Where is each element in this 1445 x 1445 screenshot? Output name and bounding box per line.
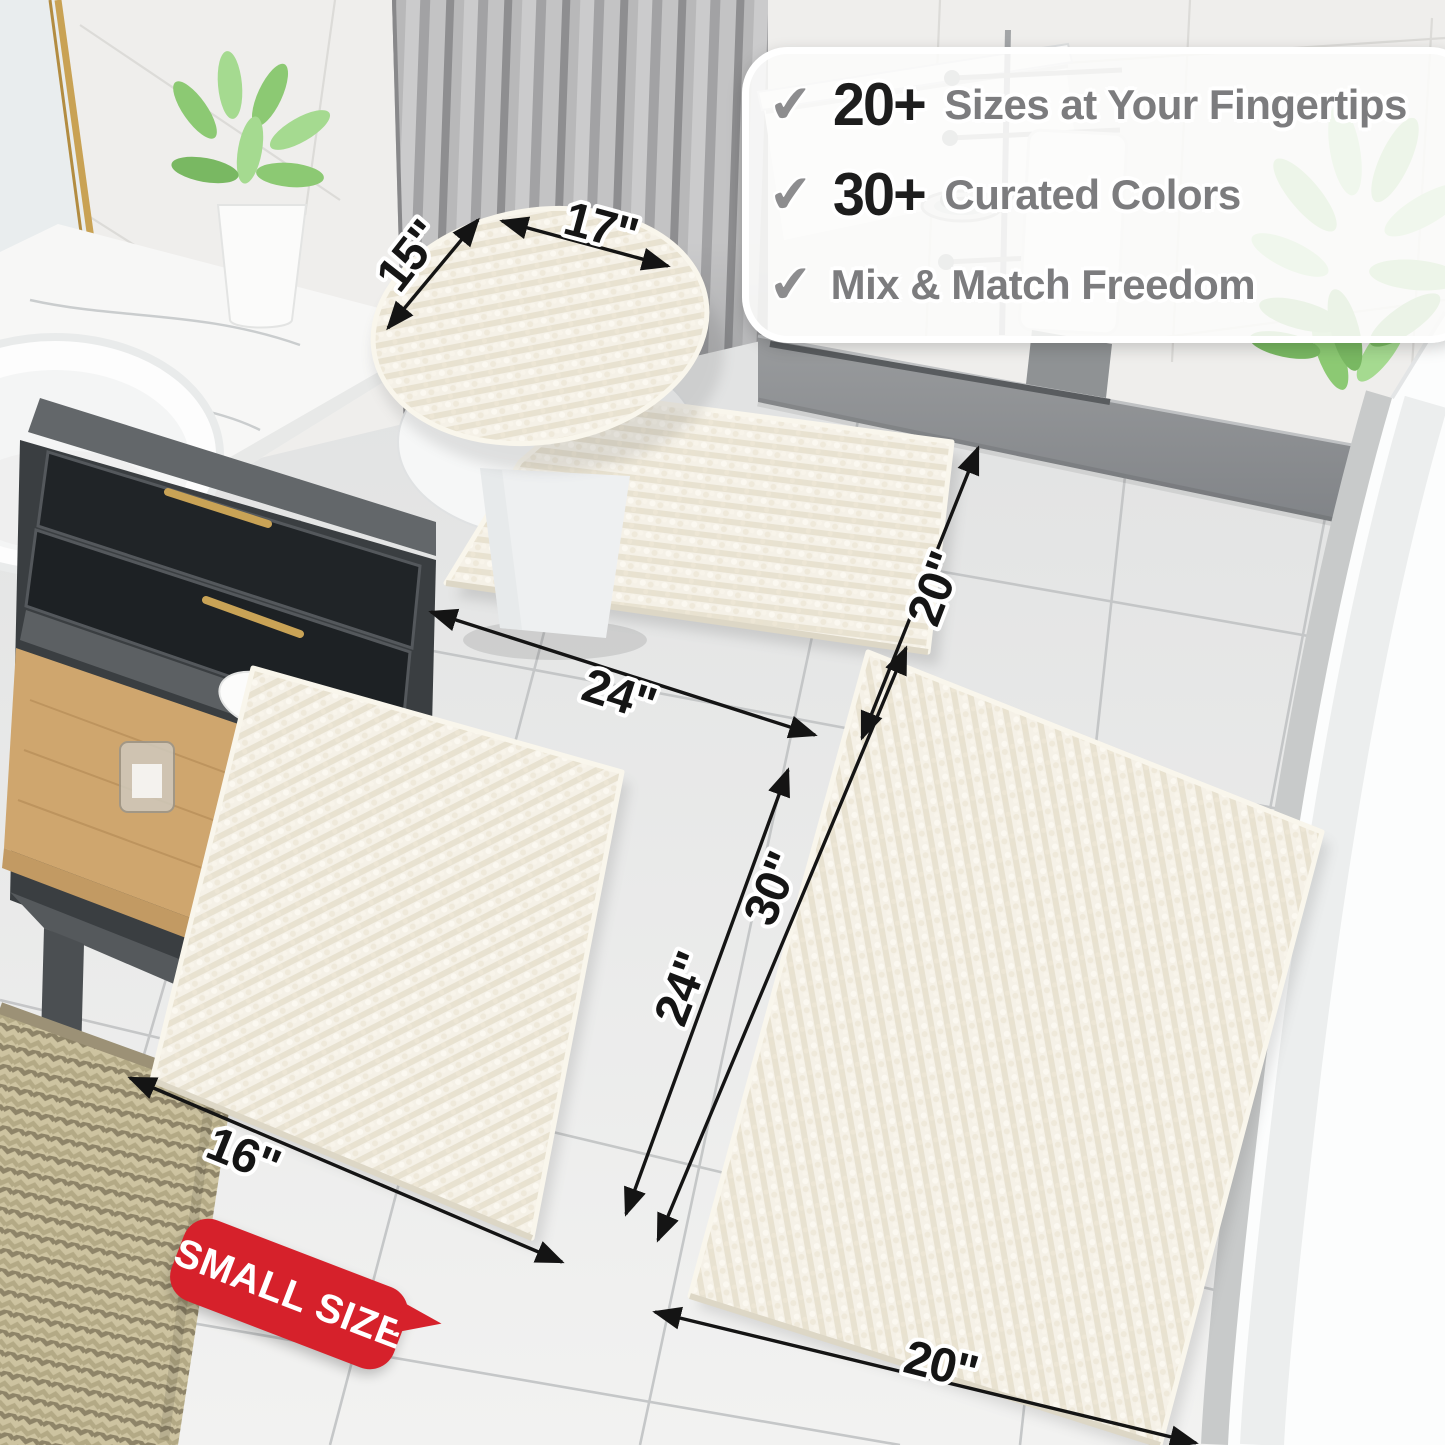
- feature-text: Sizes at Your Fingertips: [944, 84, 1407, 126]
- feature-row-colors: ✔ 30+ Curated Colors: [769, 154, 1445, 236]
- feature-text: Curated Colors: [944, 174, 1240, 216]
- feature-row-mix-match: ✔ Mix & Match Freedom: [769, 244, 1445, 326]
- checkmark-icon: ✔: [767, 78, 814, 133]
- toilet-pedestal: [480, 468, 630, 638]
- product-image: 15" 17" 24" 20" 16" 24" 30" 20": [0, 0, 1445, 1445]
- feature-callout-panel: ✔ 20+ Sizes at Your Fingertips ✔ 30+ Cur…: [742, 47, 1445, 343]
- feature-text: Mix & Match Freedom: [831, 264, 1256, 306]
- feature-row-sizes: ✔ 20+ Sizes at Your Fingertips: [769, 64, 1445, 146]
- plant-pot: [218, 205, 306, 328]
- checkmark-icon: ✔: [767, 258, 814, 313]
- feature-count: 30+: [832, 165, 924, 225]
- checkmark-icon: ✔: [767, 168, 814, 223]
- feature-count: 20+: [832, 75, 924, 135]
- bottle: [120, 742, 174, 812]
